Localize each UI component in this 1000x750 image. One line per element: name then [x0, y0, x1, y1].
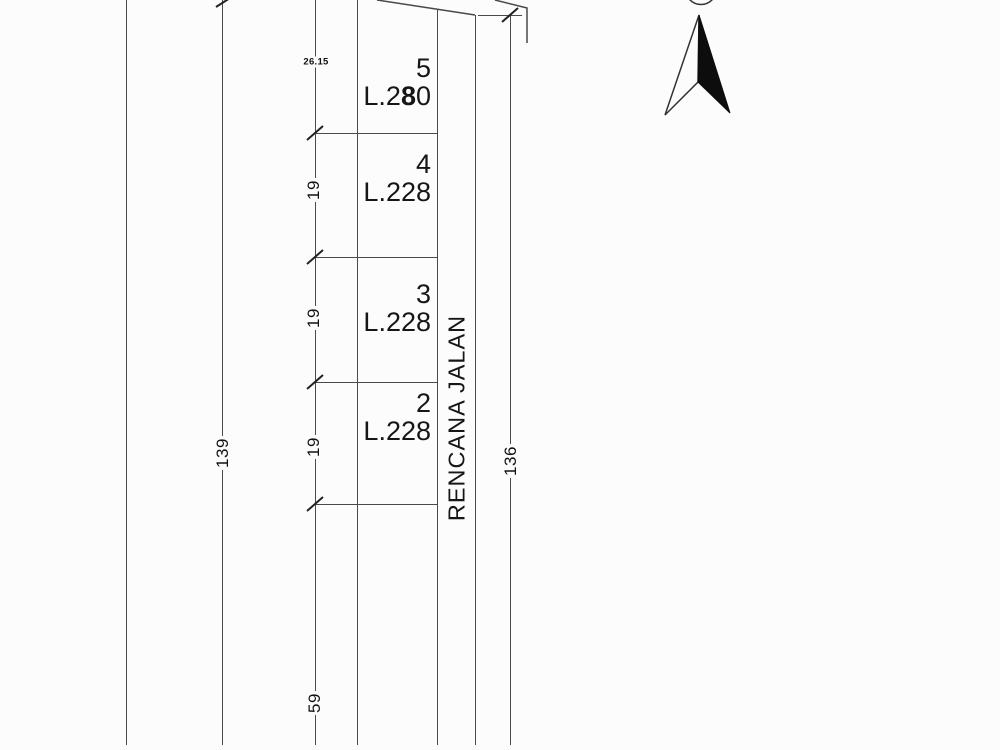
- dimension-text-plot-depth: 19: [303, 178, 325, 202]
- north-arrow-icon: [665, 0, 730, 115]
- top-boundary-line: [377, 0, 475, 15]
- plot-3: 3 L.228: [359, 280, 431, 336]
- plot-number: 2: [359, 389, 431, 417]
- dimension-line-left-total: [222, 0, 224, 745]
- plot-number: 3: [359, 280, 431, 308]
- plot-number: 4: [359, 150, 431, 178]
- plot-divider: [315, 133, 437, 135]
- dimension-line-right-total: [510, 15, 512, 745]
- plot-area-label: L.228: [359, 178, 431, 206]
- dimension-text-plot-depth: 19: [303, 435, 325, 459]
- plot-area-label: L.280: [359, 82, 431, 110]
- plot-2: 2 L.228: [359, 389, 431, 445]
- boundary-line-west: [126, 0, 128, 745]
- dimension-extension-line: [478, 15, 522, 17]
- plot-divider: [315, 257, 437, 259]
- dimension-text-left-total: 139: [212, 436, 234, 470]
- tick-mark: [216, 0, 230, 7]
- road-name-label: RENCANA JALAN: [444, 315, 471, 521]
- north-arrow-circle: [686, 0, 717, 5]
- dimension-text-top-segment: 26.15: [302, 57, 329, 68]
- north-arrow-right-half: [698, 15, 730, 113]
- dimension-text-bottom-segment: 59: [304, 691, 326, 715]
- dimension-text-right-total: 136: [500, 444, 522, 478]
- plot-4: 4 L.228: [359, 150, 431, 206]
- plot-divider: [315, 382, 437, 384]
- plot-area-label: L.228: [359, 417, 431, 445]
- road-edge-west: [437, 9, 439, 745]
- northeast-boundary-stub: [495, 0, 527, 43]
- plot-number: 5: [359, 54, 431, 82]
- road-edge-east: [475, 15, 477, 745]
- dimension-text-plot-depth: 19: [303, 306, 325, 330]
- plot-boundary-west: [357, 0, 359, 745]
- site-plan-drawing: 5 L.280 4 L.228 3 L.228 2 L.228 RENCANA …: [0, 0, 1000, 750]
- plot-5: 5 L.280: [359, 54, 431, 110]
- plot-divider: [315, 504, 437, 506]
- plot-area-label: L.228: [359, 308, 431, 336]
- north-arrow-left-half: [665, 15, 699, 115]
- dimension-line-plot-depths: [315, 0, 317, 745]
